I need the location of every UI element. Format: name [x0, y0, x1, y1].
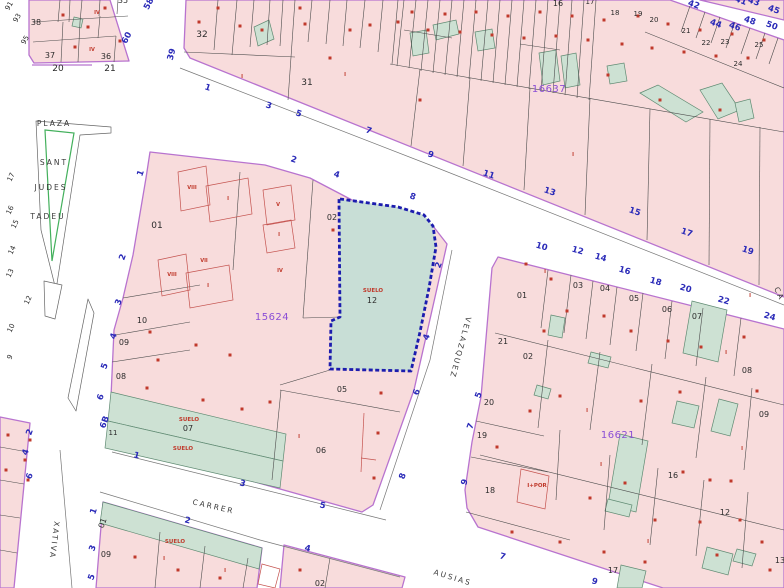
parcel-number-09: 09 — [759, 410, 769, 419]
building-mark-4 — [74, 46, 77, 49]
street-name-AUSIAS: AUSIAS — [433, 568, 473, 588]
street-number-8: 8 — [408, 191, 417, 202]
building-mark-30 — [651, 47, 654, 50]
building-mark-77 — [624, 482, 627, 485]
land-use-label-I: I — [224, 568, 226, 574]
parcel-number-21: 21 — [682, 27, 691, 35]
building-mark-83 — [709, 479, 712, 482]
land-use-label-I: I — [207, 283, 209, 289]
building-mark-7 — [261, 29, 264, 32]
building-mark-53 — [269, 401, 272, 404]
block-west-corner[interactable] — [0, 417, 30, 588]
green-parcel-7[interactable] — [607, 63, 627, 84]
land-use-label-I: I — [298, 434, 300, 440]
parcel-number-09: 09 — [101, 550, 111, 559]
building-mark-69 — [511, 531, 514, 534]
parcel-number-12: 12 — [23, 294, 34, 305]
parcel-number-20: 20 — [52, 64, 64, 74]
land-use-label-IV: IV — [94, 10, 100, 16]
street-number-22: 22 — [716, 295, 730, 308]
building-mark-25 — [571, 15, 574, 18]
parcel-number-13: 13 — [5, 267, 16, 278]
parcel-number-10: 10 — [6, 322, 17, 333]
street-name-VELAZQUEZ: VELAZQUEZ — [448, 316, 473, 380]
land-use-label-I: I — [600, 462, 602, 468]
building-mark-42 — [332, 229, 335, 232]
land-use-label-I: I — [572, 152, 574, 158]
green-parcel-11[interactable] — [548, 315, 565, 338]
building-mark-35 — [731, 33, 734, 36]
parcel-number-38: 38 — [31, 18, 41, 27]
building-mark-36 — [747, 57, 750, 60]
parcel-number-36: 36 — [101, 52, 111, 61]
parcel-number-23: 23 — [721, 38, 730, 46]
parcel-number-02: 02 — [315, 579, 325, 588]
parcel-number-09: 09 — [119, 338, 129, 347]
parcel-number-01: 01 — [517, 291, 527, 300]
green-parcel-16[interactable] — [672, 401, 699, 428]
building-mark-59 — [630, 330, 633, 333]
parcel-number-17: 17 — [586, 0, 595, 6]
street-number-5: 5 — [294, 108, 303, 119]
street-number-10: 10 — [534, 241, 548, 254]
parcel-number-37: 37 — [45, 51, 55, 60]
land-use-label-IV: IV — [89, 47, 95, 53]
building-mark-62 — [743, 336, 746, 339]
street-number-7: 7 — [498, 551, 507, 562]
land-use-label-I+POR: I+POR — [527, 483, 547, 489]
building-mark-82 — [739, 519, 742, 522]
street-number-18: 18 — [648, 276, 662, 289]
land-use-label-SUELO: SUELO — [179, 417, 199, 423]
street-number-2: 2 — [117, 253, 128, 262]
parcel-number-91: 91 — [4, 0, 15, 12]
street-number-1: 1 — [88, 507, 99, 516]
parcel-number-06: 06 — [316, 446, 326, 455]
block-ref-15624: 15624 — [255, 312, 289, 323]
sidewalk-curb-4 — [60, 450, 72, 588]
street-number-6: 6 — [24, 472, 35, 481]
building-mark-80 — [716, 554, 719, 557]
building-mark-0 — [62, 14, 65, 17]
parcel-number-16: 16 — [553, 0, 563, 8]
parcel-number-31: 31 — [301, 78, 312, 88]
building-mark-54 — [525, 263, 528, 266]
parcel-number-01: 01 — [151, 221, 162, 231]
street-name-SANT: SANT — [40, 158, 68, 167]
parcel-number-9: 9 — [6, 353, 15, 360]
street-number-50: 50 — [764, 19, 779, 32]
building-mark-5 — [198, 21, 201, 24]
parcel-number-10: 10 — [137, 316, 147, 325]
building-mark-91 — [7, 434, 10, 437]
building-mark-52 — [241, 408, 244, 411]
street-number-58: 58 — [142, 0, 156, 12]
parcel-number-14: 14 — [7, 244, 18, 256]
building-mark-28 — [621, 43, 624, 46]
building-mark-32 — [683, 51, 686, 54]
cadastral-map-svg: 3837362021353231161718192021222324250102… — [0, 0, 784, 588]
building-mark-38 — [607, 74, 610, 77]
building-mark-92 — [5, 469, 8, 472]
building-mark-19 — [475, 11, 478, 14]
building-mark-33 — [699, 29, 702, 32]
block-16621[interactable] — [465, 257, 784, 588]
parcel-number-16: 16 — [668, 471, 678, 480]
building-mark-10 — [329, 57, 332, 60]
street-number-20: 20 — [678, 283, 692, 296]
parcel-number-02: 02 — [327, 213, 337, 222]
block-ref-16637: 16637 — [532, 84, 566, 95]
land-use-label-IV: IV — [277, 268, 283, 274]
building-mark-15 — [411, 11, 414, 14]
parcel-number-19: 19 — [477, 431, 487, 440]
building-mark-41 — [419, 99, 422, 102]
street-number-3: 3 — [264, 100, 273, 111]
parcel-number-02: 02 — [523, 352, 533, 361]
building-mark-74 — [730, 480, 733, 483]
building-mark-79 — [654, 519, 657, 522]
parcel-number-07: 07 — [183, 424, 193, 433]
building-mark-39 — [659, 99, 662, 102]
building-mark-72 — [644, 561, 647, 564]
parcel-number-18: 18 — [485, 486, 495, 495]
street-number-12: 12 — [570, 245, 584, 258]
building-mark-60 — [667, 340, 670, 343]
parcel-number-08: 08 — [116, 372, 126, 381]
building-mark-31 — [667, 23, 670, 26]
land-use-label-I: I — [227, 196, 229, 202]
building-mark-56 — [543, 330, 546, 333]
parcel-number-07: 07 — [692, 312, 702, 321]
building-mark-13 — [299, 7, 302, 10]
parcel-number-20: 20 — [650, 16, 659, 24]
parcel-number-20: 20 — [484, 398, 494, 407]
parcel-number-17: 17 — [608, 566, 618, 575]
building-mark-17 — [444, 13, 447, 16]
building-mark-84 — [134, 556, 137, 559]
land-use-label-I: I — [725, 350, 727, 356]
street-number-8: 8 — [397, 472, 408, 481]
building-mark-58 — [603, 315, 606, 318]
parcel-number-11: 11 — [109, 429, 118, 437]
building-mark-85 — [177, 569, 180, 572]
building-mark-27 — [603, 19, 606, 22]
block-south[interactable] — [280, 545, 405, 588]
building-mark-46 — [149, 331, 152, 334]
building-mark-86 — [219, 577, 222, 580]
building-mark-49 — [229, 354, 232, 357]
building-mark-26 — [587, 39, 590, 42]
building-mark-18 — [459, 31, 462, 34]
street-number-16: 16 — [617, 265, 631, 278]
street-name-JUDES: JUDES — [34, 183, 68, 192]
street-number-1: 1 — [132, 450, 140, 461]
parcel-number-32: 32 — [196, 30, 207, 40]
building-mark-61 — [700, 346, 703, 349]
parcel-number-16: 16 — [5, 204, 16, 216]
land-use-label-I: I — [278, 232, 280, 238]
land-use-label-I: I — [344, 72, 346, 78]
building-mark-40 — [719, 109, 722, 112]
parcel-number-03: 03 — [573, 281, 583, 290]
building-mark-65 — [640, 400, 643, 403]
building-mark-88 — [29, 439, 32, 442]
land-use-label-I: I — [749, 293, 751, 299]
street-number-4: 4 — [332, 169, 341, 180]
street-number-5: 5 — [318, 500, 326, 511]
parcel-number-18: 18 — [611, 9, 620, 17]
building-mark-57 — [566, 310, 569, 313]
building-mark-14 — [397, 21, 400, 24]
land-use-label-VIII: VIII — [187, 185, 197, 191]
building-mark-47 — [157, 359, 160, 362]
parcel-number-15: 15 — [10, 218, 21, 229]
parcel-number-35: 35 — [118, 0, 128, 5]
map-viewport: 3837362021353231161718192021222324250102… — [0, 0, 784, 588]
street-number-5: 5 — [99, 362, 110, 371]
land-use-label-VIII: VIII — [167, 272, 177, 278]
building-mark-81 — [769, 569, 772, 572]
parcel-number-12: 12 — [367, 296, 377, 305]
parcel-number-19: 19 — [634, 10, 643, 18]
street-name-CARRER: CARRER — [192, 497, 236, 515]
land-use-label-I: I — [741, 446, 743, 452]
street-number-3: 3 — [87, 544, 98, 553]
land-use-label-I: I — [647, 539, 649, 545]
street-number-6: 6 — [95, 393, 106, 402]
building-mark-71 — [603, 551, 606, 554]
street-name-PLAZA: PLAZA — [37, 119, 71, 128]
parcel-number-05: 05 — [629, 294, 639, 303]
building-mark-8 — [304, 23, 307, 26]
parcel-number-04: 04 — [600, 284, 610, 293]
building-mark-51 — [202, 399, 205, 402]
building-mark-70 — [559, 541, 562, 544]
building-mark-75 — [761, 541, 764, 544]
building-mark-66 — [559, 395, 562, 398]
building-mark-21 — [507, 15, 510, 18]
building-mark-20 — [491, 34, 494, 37]
building-mark-1 — [87, 26, 90, 29]
parcel-number-21: 21 — [498, 337, 508, 346]
block-ref-16621: 16621 — [601, 430, 635, 441]
street-number-39: 39 — [166, 47, 179, 61]
building-mark-34 — [715, 55, 718, 58]
land-use-label-I: I — [544, 269, 546, 275]
parcel-number-12: 12 — [720, 508, 730, 517]
street-island-1 — [44, 281, 62, 319]
building-mark-73 — [699, 521, 702, 524]
building-mark-64 — [679, 391, 682, 394]
street-number-1: 1 — [135, 169, 146, 178]
land-use-label-I: I — [163, 556, 165, 562]
street-number-2: 2 — [289, 154, 298, 165]
building-mark-63 — [756, 390, 759, 393]
land-use-label-VII: VII — [200, 258, 208, 264]
building-mark-24 — [555, 35, 558, 38]
street-number-1: 1 — [203, 82, 212, 93]
street-number-14: 14 — [593, 252, 607, 265]
street-name-CA: CA — [772, 286, 784, 303]
street-number-6: 6 — [411, 388, 422, 397]
building-mark-48 — [195, 344, 198, 347]
building-mark-22 — [523, 37, 526, 40]
sub-parcel-7 — [258, 564, 280, 588]
building-mark-67 — [529, 410, 532, 413]
building-mark-23 — [539, 11, 542, 14]
parcel-number-21: 21 — [104, 64, 115, 74]
parcel-number-13: 13 — [775, 556, 784, 565]
street-number-24: 24 — [762, 311, 776, 324]
street-number-2: 2 — [183, 515, 191, 526]
building-mark-89 — [24, 459, 27, 462]
building-mark-44 — [373, 477, 376, 480]
parcel-number-05: 05 — [337, 385, 347, 394]
street-name-TADEU: TADEU — [29, 212, 65, 221]
building-mark-87 — [299, 569, 302, 572]
building-mark-76 — [682, 471, 685, 474]
parcel-number-24: 24 — [734, 60, 743, 68]
building-mark-50 — [146, 387, 149, 390]
building-mark-55 — [550, 278, 553, 281]
building-mark-9 — [349, 29, 352, 32]
building-mark-2 — [104, 7, 107, 10]
parcel-number-22: 22 — [702, 39, 711, 47]
parcel-number-06: 06 — [662, 305, 672, 314]
building-mark-78 — [589, 497, 592, 500]
building-mark-12 — [217, 7, 220, 10]
street-number-3: 3 — [238, 478, 246, 489]
building-mark-16 — [427, 29, 430, 32]
building-mark-45 — [377, 432, 380, 435]
parcel-number-17: 17 — [6, 171, 17, 182]
building-mark-11 — [369, 24, 372, 27]
street-name-XATIVA: XATIVA — [48, 521, 62, 560]
land-use-label-V: V — [276, 202, 280, 208]
land-use-label-SUELO: SUELO — [173, 446, 193, 452]
land-use-label-I: I — [586, 408, 588, 414]
land-use-label-SUELO: SUELO — [165, 539, 185, 545]
street-island-2 — [68, 299, 94, 411]
land-use-label-I: I — [241, 74, 243, 80]
building-mark-43 — [380, 392, 383, 395]
street-number-9: 9 — [590, 576, 599, 587]
parcel-number-25: 25 — [755, 41, 764, 49]
street-number-5: 5 — [86, 573, 97, 582]
parcel-number-08: 08 — [742, 366, 752, 375]
land-use-label-SUELO: SUELO — [363, 288, 383, 294]
building-mark-6 — [239, 25, 242, 28]
building-mark-68 — [496, 446, 499, 449]
parcel-number-93: 93 — [12, 12, 23, 24]
